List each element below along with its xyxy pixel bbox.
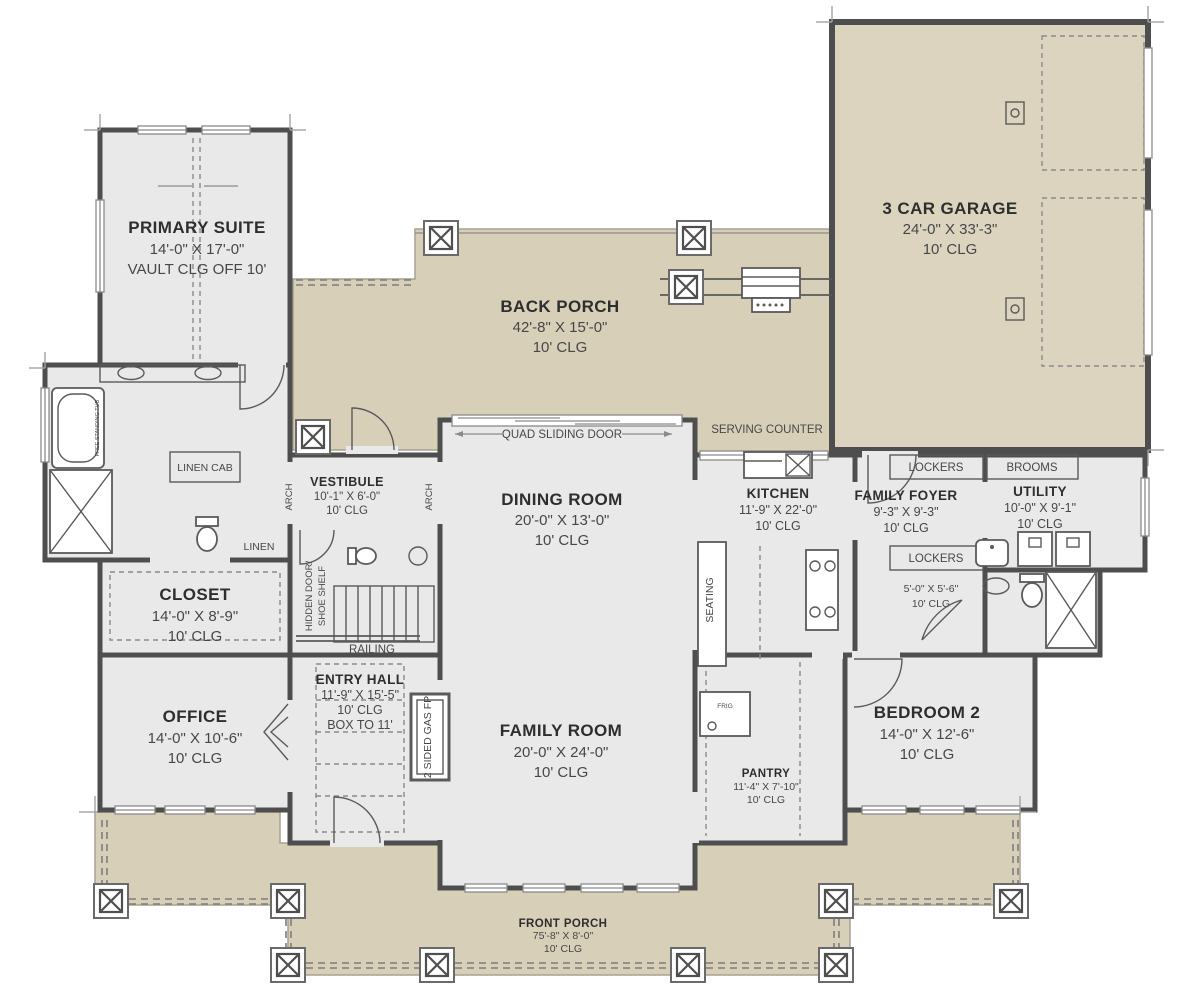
fridge-label: FRIG: [717, 703, 733, 710]
room-name: 3 CAR GARAGE: [882, 199, 1017, 218]
room-name: FRONT PORCH: [519, 918, 608, 930]
room-clg: 10' CLG: [883, 521, 928, 535]
serving-counter-label: SERVING COUNTER: [711, 424, 823, 436]
room-dims: 10'-1" X 6'-0": [314, 491, 380, 503]
room-dims: 14'-0" X 8'-9": [152, 608, 238, 625]
room-name: VESTIBULE: [310, 475, 384, 489]
room-dims: 5'-0" X 5'-6": [904, 583, 959, 595]
room-dims: 11'-9" X 22'-0": [739, 503, 817, 517]
room-clg: 10' CLG: [544, 943, 582, 955]
room-name: DINING ROOM: [501, 490, 623, 509]
room-dims: 14'-0" X 17'-0": [150, 241, 245, 258]
window: [215, 806, 255, 814]
shower: [50, 470, 112, 553]
brooms-label: BROOMS: [1006, 462, 1057, 474]
bath-shower: [1046, 572, 1096, 648]
room-name: BEDROOM 2: [874, 703, 981, 722]
railing-label: RAILING: [349, 644, 395, 656]
column-icon: [420, 948, 454, 982]
room-clg: 10' CLG: [168, 628, 223, 645]
room-clg: 10' CLG: [534, 764, 589, 781]
room-name: CLOSET: [159, 585, 231, 604]
window: [862, 806, 906, 814]
range: [806, 550, 838, 630]
room-dims: 9'-3" X 9'-3": [873, 505, 938, 519]
window: [465, 884, 507, 892]
seating-label: SEATING: [704, 577, 716, 622]
room-clg: 10' CLG: [923, 241, 978, 258]
lockers-top-label: LOCKERS: [909, 462, 964, 474]
hidden-door-label-2: SHOE SHELF: [317, 566, 328, 626]
column-icon: [819, 948, 853, 982]
arch-right-label: ARCH: [424, 483, 435, 510]
window: [581, 884, 623, 892]
room-dims: 20'-0" X 24'-0": [514, 744, 609, 761]
room-clg: 10' CLG: [747, 794, 785, 806]
window: [115, 806, 155, 814]
window: [976, 806, 1020, 814]
room-name: PANTRY: [742, 768, 790, 780]
window: [523, 884, 565, 892]
pantry-hall-room: [695, 655, 845, 843]
room-clg: 10' CLG: [900, 746, 955, 763]
window: [165, 806, 205, 814]
window: [637, 884, 679, 892]
room-clg: 10' CLG: [168, 750, 223, 767]
linen-cab-label: LINEN CAB: [177, 462, 232, 474]
room-clg: 10' CLG: [533, 339, 588, 356]
room-name: PRIMARY SUITE: [128, 218, 265, 237]
column-icon: [669, 270, 703, 304]
window: [96, 200, 104, 292]
floor-plan-sheet: PRIMARY SUITE 14'-0" X 17'-0" VAULT CLG …: [0, 0, 1200, 1005]
room-clg: 10' CLG: [1017, 517, 1062, 531]
room-name: FAMILY ROOM: [500, 721, 622, 740]
room-name: UTILITY: [1013, 484, 1067, 499]
room-dims: 14'-0" X 12'-6": [880, 726, 975, 743]
room-name: FAMILY FOYER: [854, 488, 957, 503]
window: [1141, 478, 1149, 536]
room-clg: 10' CLG: [337, 703, 382, 717]
lockers-bottom-label: LOCKERS: [909, 553, 964, 565]
room-clg: 10' CLG: [755, 519, 800, 533]
room-dims: 14'-0" X 10'-6": [148, 730, 243, 747]
column-icon: [994, 884, 1028, 918]
room-dims: 75'-8" X 8'-0": [533, 930, 594, 942]
window: [920, 806, 964, 814]
column-icon: [819, 884, 853, 918]
room-dims: 11'-9" X 15'-5": [321, 688, 399, 702]
column-icon: [271, 884, 305, 918]
window: [41, 388, 49, 462]
column-icon: [424, 221, 458, 255]
window: [138, 126, 186, 134]
toilet: [196, 517, 218, 551]
room-dims: 10'-0" X 9'-1": [1004, 501, 1076, 515]
refrigerator: [700, 692, 750, 736]
room-clg: 10' CLG: [535, 532, 590, 549]
window: [202, 126, 250, 134]
room-dims: 42'-8" X 15'-0": [513, 319, 608, 336]
room-name: ENTRY HALL: [316, 672, 405, 687]
column-icon: [671, 948, 705, 982]
room-name: KITCHEN: [747, 486, 810, 501]
utility-sink: [976, 540, 1008, 566]
arch-left-label: ARCH: [284, 483, 295, 510]
quad-sliding-door-panels: [452, 415, 682, 426]
column-icon: [271, 948, 305, 982]
room-dims: 11'-4" X 7'-10": [733, 781, 799, 793]
column-icon: [677, 221, 711, 255]
cooktop-wall-ovens: [744, 452, 812, 478]
free-standing-tub-label: FREE STANDING TUB: [95, 399, 101, 456]
room-dims: 24'-0" X 33'-3": [903, 221, 998, 238]
column-icon: [94, 884, 128, 918]
floor-plan-drawing: PRIMARY SUITE 14'-0" X 17'-0" VAULT CLG …: [0, 0, 1200, 1005]
room-clg: 10' CLG: [912, 598, 950, 610]
room-extra: BOX TO 11': [327, 718, 393, 732]
quad-sliding-door-label: QUAD SLIDING DOOR: [502, 429, 622, 441]
room-name: OFFICE: [163, 707, 228, 726]
linen-label: LINEN: [244, 541, 275, 553]
room-dims: 20'-0" X 13'-0": [515, 512, 610, 529]
gas-fireplace-label: 2 SIDED GAS FP: [422, 696, 434, 778]
hidden-door-label-1: HIDDEN DOOR/: [304, 561, 315, 632]
room-clg: 10' CLG: [326, 505, 368, 517]
column-icon: [296, 420, 330, 454]
room-name: BACK PORCH: [500, 297, 619, 316]
room-clg: VAULT CLG OFF 10': [128, 261, 267, 278]
